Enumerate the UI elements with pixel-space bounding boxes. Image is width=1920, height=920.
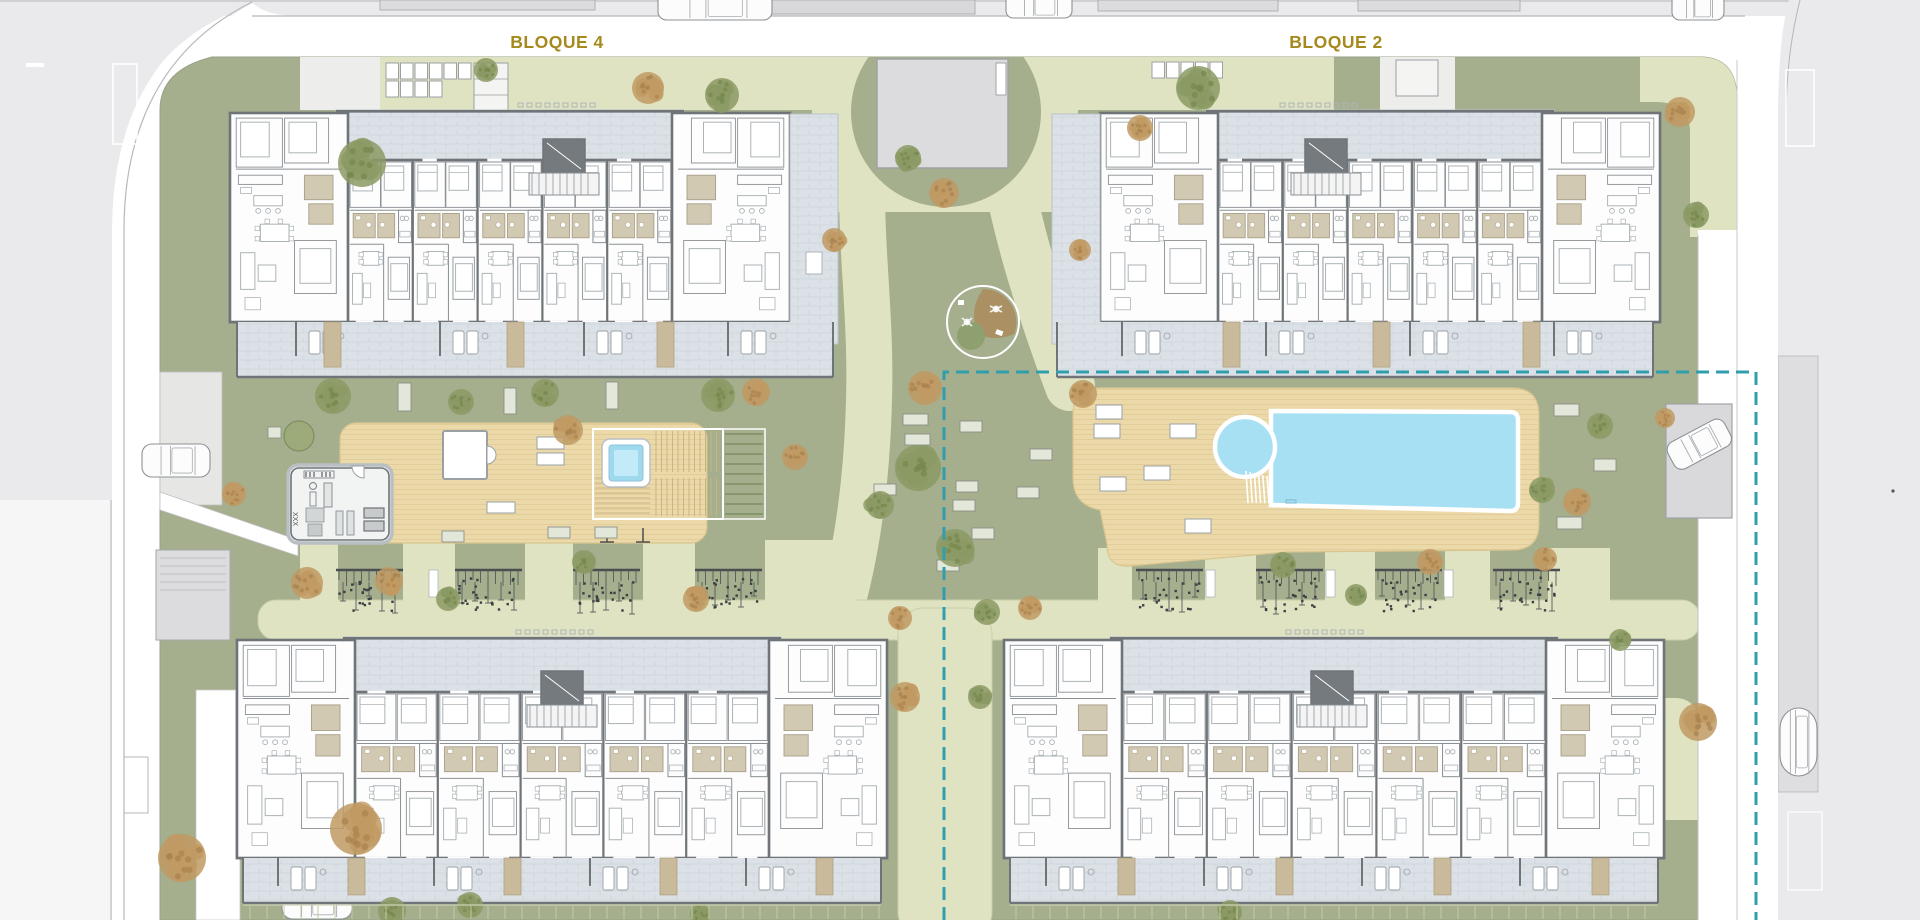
svg-text:BLOQUE 2: BLOQUE 2	[1289, 32, 1382, 52]
svg-text:XXX: XXX	[291, 512, 298, 526]
svg-text:BLOQUE 4: BLOQUE 4	[510, 32, 603, 52]
